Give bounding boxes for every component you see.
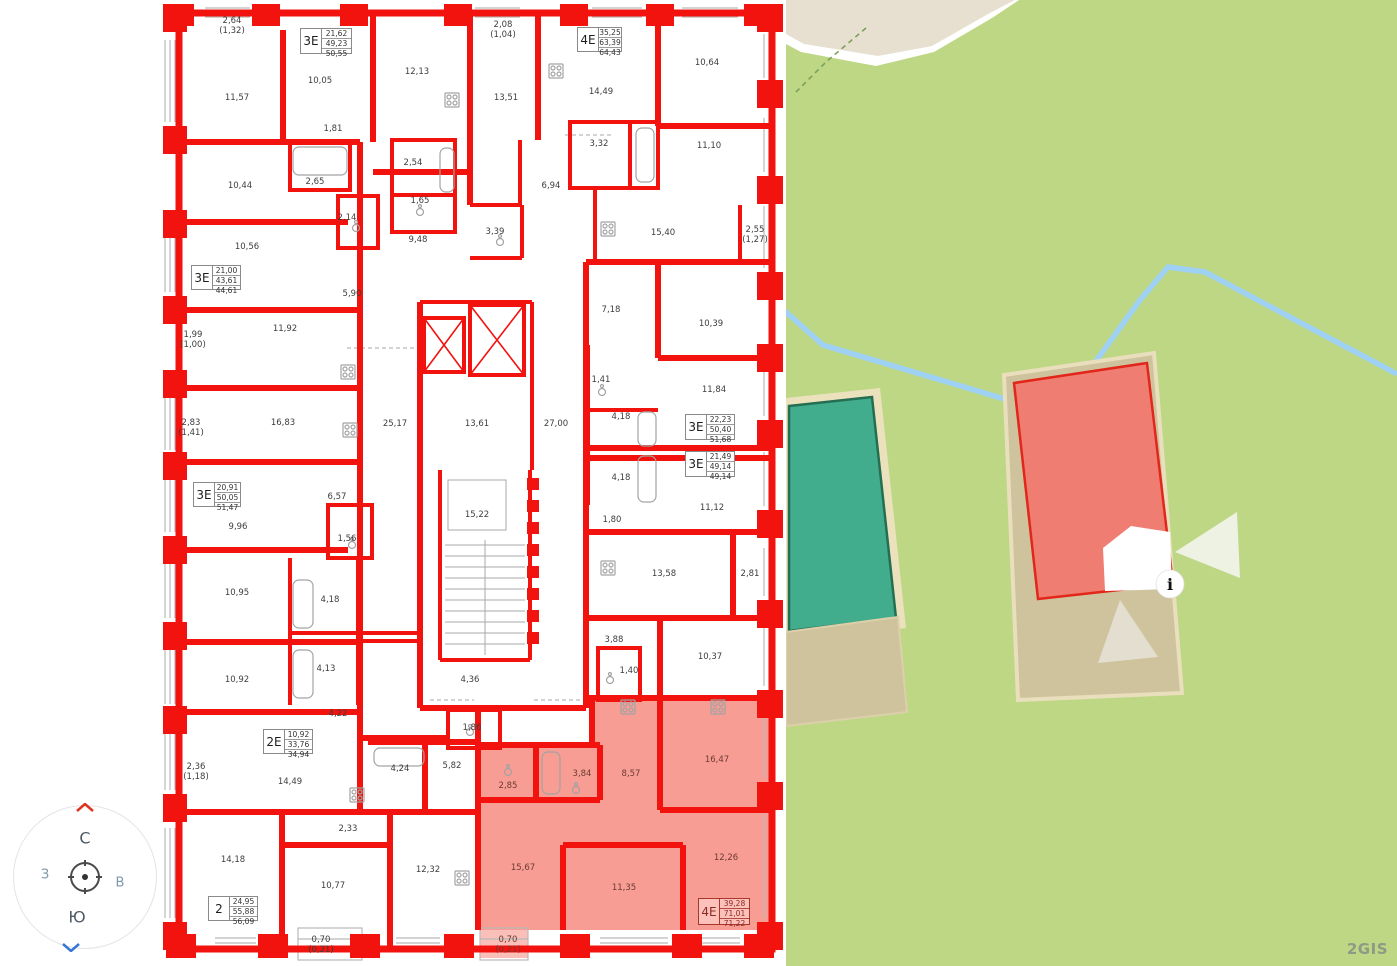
compass-south-label: Ю — [68, 908, 85, 927]
info-marker[interactable]: i — [1156, 570, 1184, 598]
highlighted-apartment-area[interactable] — [478, 698, 772, 930]
info-marker-label: i — [1167, 575, 1173, 594]
compass-east-label: В — [116, 876, 125, 891]
compass-north-label: С — [79, 829, 90, 848]
elevator-shafts — [424, 305, 524, 375]
highlighted-balcony — [480, 928, 528, 958]
compass-up-chevron-icon[interactable] — [76, 803, 94, 812]
compass-down-chevron-icon[interactable] — [62, 943, 80, 952]
compass-dial-icon — [61, 853, 109, 901]
compass[interactable]: С Ю З В — [13, 805, 157, 949]
map-watermark: 2GIS — [1347, 940, 1388, 958]
floorplan-panel: 2,64 (1,32)10,0512,132,08 (1,04)14,4910,… — [0, 0, 786, 966]
map-panel[interactable]: i 2GIS — [786, 0, 1397, 966]
tan-building-lower[interactable] — [786, 617, 907, 726]
compass-west-label: З — [41, 868, 49, 883]
map-canvas[interactable]: i — [786, 0, 1397, 966]
listing-view: 2,64 (1,32)10,0512,132,08 (1,04)14,4910,… — [0, 0, 1397, 966]
staircase — [445, 480, 525, 655]
